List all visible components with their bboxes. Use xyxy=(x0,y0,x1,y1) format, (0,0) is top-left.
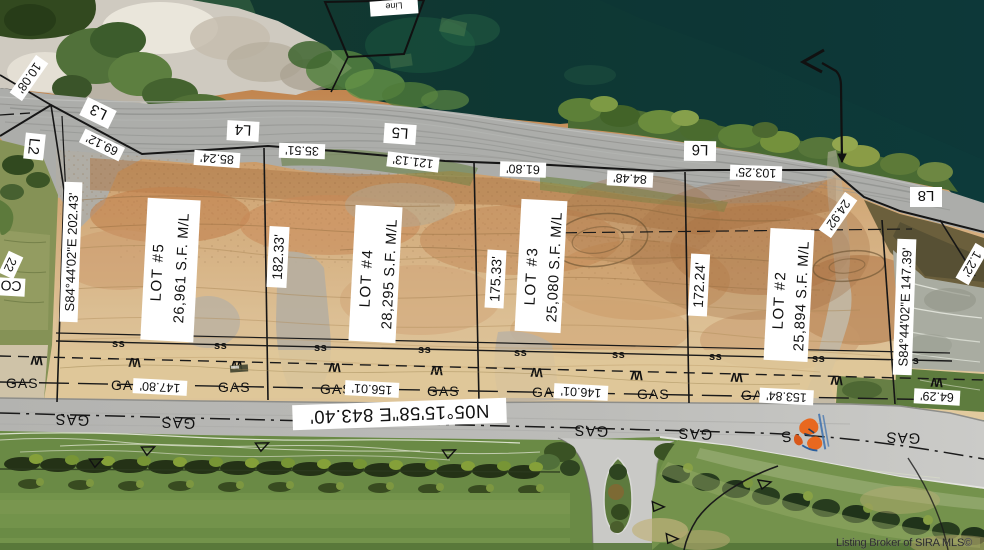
svg-text:61.80': 61.80' xyxy=(506,161,540,176)
svg-text:156.01': 156.01' xyxy=(351,381,392,397)
svg-text:GAS: GAS xyxy=(637,386,670,402)
svg-text:35.51': 35.51' xyxy=(285,143,319,158)
svg-text:84.48': 84.48' xyxy=(613,171,647,187)
svg-text:ss: ss xyxy=(418,344,431,356)
svg-text:LOT #4: LOT #4 xyxy=(356,248,376,308)
svg-text:153.84': 153.84' xyxy=(766,388,807,404)
svg-text:85.24': 85.24' xyxy=(200,150,235,166)
svg-text:ss: ss xyxy=(214,340,227,352)
svg-text:GAS: GAS xyxy=(160,413,195,431)
svg-text:W: W xyxy=(930,375,944,391)
svg-text:64.29': 64.29' xyxy=(920,389,954,405)
svg-text:W: W xyxy=(530,365,544,381)
svg-text:W: W xyxy=(30,353,44,369)
svg-text:W: W xyxy=(430,363,444,379)
svg-text:L2: L2 xyxy=(24,137,43,155)
svg-text:GAS: GAS xyxy=(885,428,920,446)
svg-text:W: W xyxy=(730,370,744,386)
svg-text:CO: CO xyxy=(0,277,22,294)
svg-text:ss: ss xyxy=(612,349,625,361)
svg-text:147.80': 147.80' xyxy=(139,379,180,395)
svg-text:ss: ss xyxy=(709,351,722,363)
svg-text:LOT #5: LOT #5 xyxy=(147,242,167,302)
svg-text:S: S xyxy=(779,427,792,445)
svg-text:GAS: GAS xyxy=(677,424,712,442)
svg-text:L6: L6 xyxy=(692,141,709,158)
svg-text:182.33': 182.33' xyxy=(269,234,287,280)
svg-text:GAS: GAS xyxy=(427,383,460,399)
svg-text:W: W xyxy=(128,355,142,371)
svg-text:103.25': 103.25' xyxy=(735,165,776,180)
svg-text:GAS: GAS xyxy=(6,375,39,391)
svg-text:W: W xyxy=(328,360,342,376)
svg-text:ss: ss xyxy=(812,353,825,365)
svg-text:L5: L5 xyxy=(391,123,409,141)
svg-text:GAS: GAS xyxy=(573,421,608,439)
svg-text:Listing Broker of SIRA MLS©: Listing Broker of SIRA MLS© xyxy=(836,537,972,549)
svg-text:ss: ss xyxy=(314,342,327,354)
svg-text:ss: ss xyxy=(112,338,125,350)
svg-text:LOT #2: LOT #2 xyxy=(769,270,789,330)
svg-text:Line: Line xyxy=(385,0,403,11)
svg-text:172.24': 172.24' xyxy=(690,262,708,308)
svg-text:ss: ss xyxy=(514,347,527,359)
svg-text:L4: L4 xyxy=(234,121,252,139)
svg-text:GAS: GAS xyxy=(54,410,89,428)
svg-text:175.33': 175.33' xyxy=(486,256,504,302)
svg-text:LOT #3: LOT #3 xyxy=(521,246,541,306)
svg-text:146.01': 146.01' xyxy=(560,384,601,400)
svg-text:W: W xyxy=(830,373,844,389)
svg-text:L8: L8 xyxy=(918,187,935,204)
svg-text:GAS: GAS xyxy=(218,379,251,395)
